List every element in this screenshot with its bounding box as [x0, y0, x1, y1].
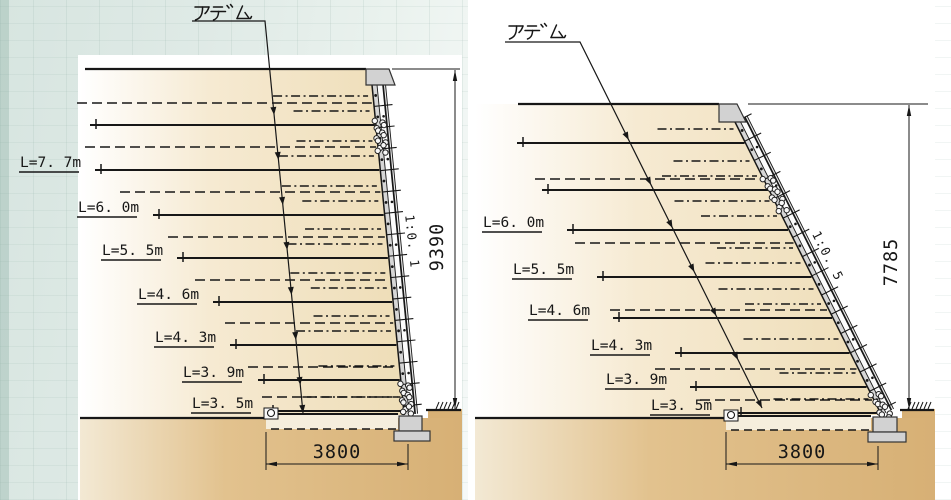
cad-viewport: L=7. 7mL=6. 0mL=5. 5mL=4. 6mL=4. 3mL=3. …	[0, 0, 951, 500]
right-wall-section: L=6. 0mL=5. 5mL=4. 6mL=4. 3mL=3. 9mL=3. …	[468, 0, 935, 500]
height-dimension-text: 9390	[427, 223, 448, 272]
nail-length-label: L=4. 3m	[155, 330, 216, 346]
nail-length-label: L=3. 9m	[606, 372, 667, 388]
nail-length-label: L=3. 5m	[651, 398, 712, 414]
nail-length-label: L=4. 3m	[591, 338, 652, 354]
nail-length-label: L=6. 0m	[78, 200, 139, 216]
trench-anchor-detail	[264, 408, 278, 419]
nail-length-label: L=4. 6m	[529, 303, 590, 319]
nail-length-label: L=5. 5m	[102, 243, 163, 259]
nail-length-label: L=3. 9m	[183, 365, 244, 381]
trench-anchor-detail	[724, 410, 738, 421]
nail-length-label: L=7. 7m	[20, 155, 81, 171]
base-width-dimension-text: 3800	[313, 442, 362, 463]
nail-length-label: L=3. 5m	[192, 396, 253, 412]
excavation-trench	[726, 416, 871, 430]
retaining-wall-cross-sections: L=7. 7mL=6. 0mL=5. 5mL=4. 6mL=4. 3mL=3. …	[0, 0, 951, 500]
base-width-dimension-text: 3800	[778, 442, 827, 463]
excavation-trench	[266, 414, 398, 429]
nail-length-label: L=6. 0m	[483, 215, 544, 231]
nail-length-label: L=5. 5m	[513, 262, 574, 278]
nail-length-label: L=4. 6m	[138, 287, 199, 303]
left-wall-section: L=7. 7mL=6. 0mL=5. 5mL=4. 6mL=4. 3mL=3. …	[19, 5, 462, 500]
adem-callout-label	[195, 5, 252, 21]
height-dimension-text: 7785	[881, 238, 902, 287]
